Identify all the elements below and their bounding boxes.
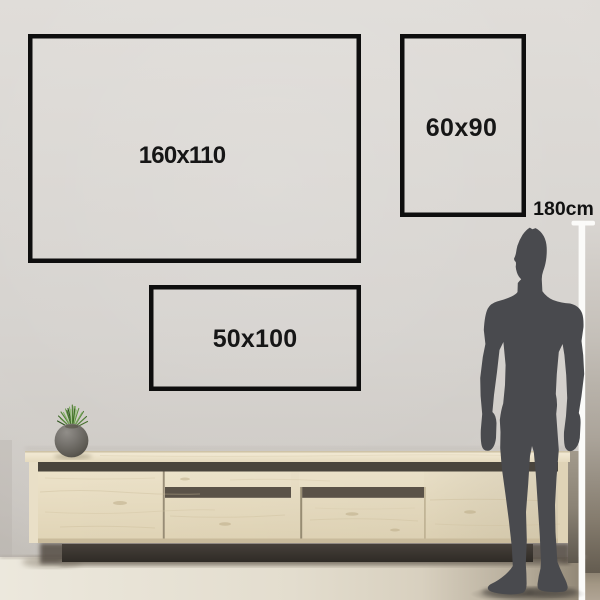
svg-text:60x90: 60x90 xyxy=(426,114,498,142)
svg-text:160x110: 160x110 xyxy=(139,142,226,169)
svg-text:50x100: 50x100 xyxy=(213,325,298,353)
svg-text:180cm: 180cm xyxy=(533,198,594,220)
